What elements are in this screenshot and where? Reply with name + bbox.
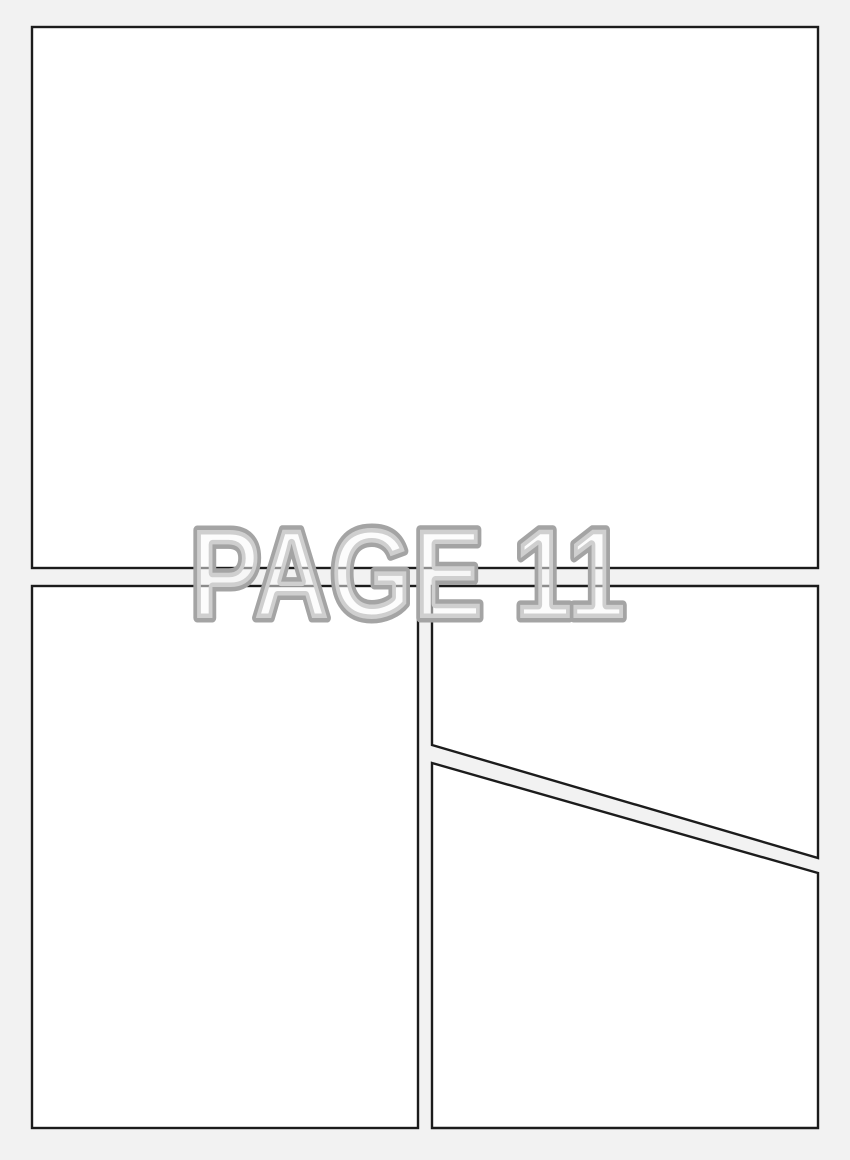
comic-page-canvas: PAGE 11	[0, 0, 850, 1160]
panel-bottom-left	[32, 586, 418, 1128]
comic-template-page: PAGE 11	[0, 0, 850, 1160]
page-number-label: PAGE 11	[190, 503, 626, 646]
panel-top	[32, 27, 818, 568]
